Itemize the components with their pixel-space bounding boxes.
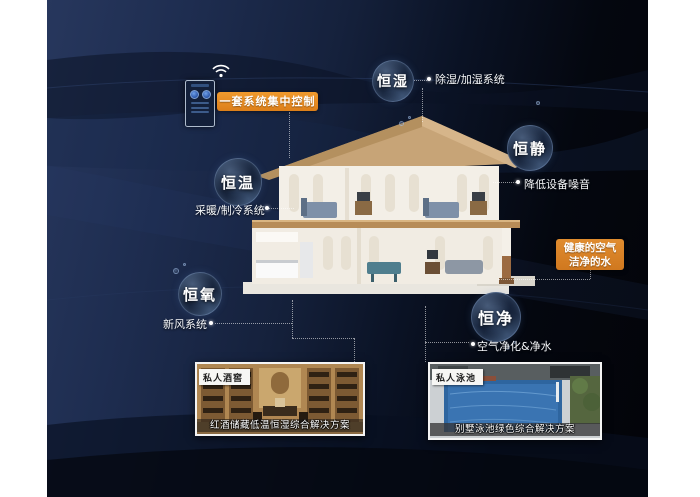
healthy-line1: 健康的空气 — [556, 241, 624, 255]
panel-dial-left — [190, 90, 199, 99]
pool-card-caption: 别墅泳池绿色综合解决方案 — [430, 423, 600, 436]
mini-bubble — [173, 268, 179, 274]
healthy-air-water-callout: 健康的空气 洁净的水 — [556, 239, 624, 270]
label-noise-reduction: 降低设备噪音 — [524, 176, 590, 192]
wine-cellar-card: 私人酒窖 红酒储藏低温恒湿综合解决方案 — [195, 362, 365, 436]
wine-card-tag: 私人酒窖 — [199, 369, 250, 385]
connector-hengwen — [269, 208, 294, 209]
central-control-callout: 一套系统集中控制 — [217, 92, 318, 111]
bubble-label: 恒静 — [513, 138, 547, 159]
bullet-dot — [427, 77, 431, 81]
bubble-label: 恒净 — [478, 305, 514, 329]
connector-hengyang — [215, 323, 292, 324]
panel-dials — [188, 90, 212, 99]
dark-stage: 一套系统集中控制 健康的空气 洁净的水 恒湿 恒静 恒温 恒氧 恒净 除湿/加湿… — [47, 0, 648, 497]
panel-status-bar — [191, 84, 209, 87]
bubble-constant-quiet: 恒静 — [507, 125, 553, 171]
connector-healthy-drop — [590, 270, 591, 279]
bubble-constant-oxygen: 恒氧 — [178, 272, 222, 316]
infographic-frame: { "title": "恒温恒湿智能家居系统示意图", "control": {… — [0, 0, 700, 497]
label-air-water-purify: 空气净化&净水 — [477, 338, 552, 354]
panel-row — [191, 111, 209, 113]
connector-healthy-to-house — [498, 279, 590, 280]
bullet-dot — [471, 342, 475, 346]
pool-card: 私人泳池 别墅泳池绿色综合解决方案 — [428, 362, 602, 440]
wine-card-caption: 红酒储藏低温恒湿综合解决方案 — [197, 419, 363, 432]
bubble-constant-clean: 恒净 — [471, 292, 521, 342]
bubble-constant-temperature: 恒温 — [214, 158, 262, 206]
label-fresh-air: 新风系统 — [163, 316, 207, 332]
label-heating-cooling: 采暖/制冷系统 — [195, 202, 265, 218]
pool-card-tag: 私人泳池 — [432, 369, 483, 385]
connector-wine-card-drop — [354, 338, 355, 362]
mini-bubble — [536, 101, 540, 105]
wall-control-panel — [185, 80, 215, 127]
panel-row — [191, 107, 209, 109]
mini-bubble — [399, 121, 404, 126]
connector-hengjin — [425, 342, 469, 343]
bubble-label: 恒温 — [221, 172, 255, 193]
mini-bubble — [183, 263, 186, 266]
bullet-dot — [265, 206, 269, 210]
connector-hengshi-bullet — [414, 80, 427, 81]
mini-bubble — [408, 116, 411, 119]
connector-control-to-house — [289, 112, 290, 158]
connector-house-down-right — [425, 306, 426, 362]
connector-hengjing — [493, 182, 516, 183]
bubble-label: 恒氧 — [183, 284, 217, 305]
label-dehumidify-system: 除湿/加湿系统 — [435, 71, 505, 87]
connector-to-wine-card — [292, 338, 354, 339]
panel-dial-right — [202, 90, 211, 99]
bubble-label: 恒湿 — [377, 71, 409, 91]
connector-house-down-left — [292, 300, 293, 338]
connector-hengshi-to-roof — [422, 88, 423, 122]
bubble-constant-humidity: 恒湿 — [372, 60, 414, 102]
bullet-dot — [209, 321, 213, 325]
healthy-line2: 洁净的水 — [556, 255, 624, 269]
panel-row — [191, 102, 209, 104]
wifi-icon — [212, 63, 230, 78]
bullet-dot — [516, 180, 520, 184]
